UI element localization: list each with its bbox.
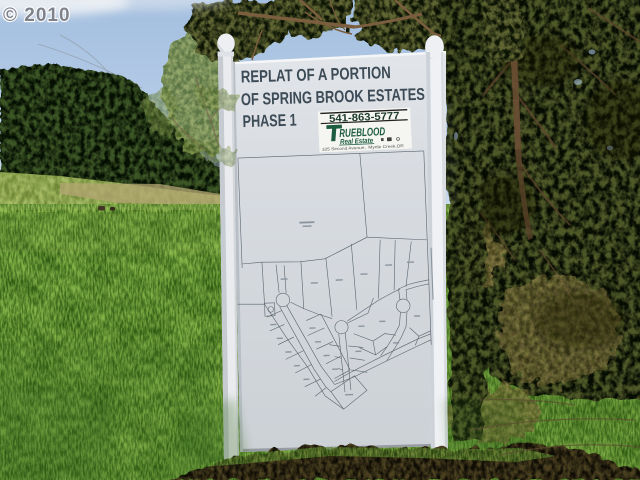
svg-text:PHASE 1: PHASE 1 xyxy=(242,111,297,132)
svg-text:© 2010: © 2010 xyxy=(3,5,71,26)
